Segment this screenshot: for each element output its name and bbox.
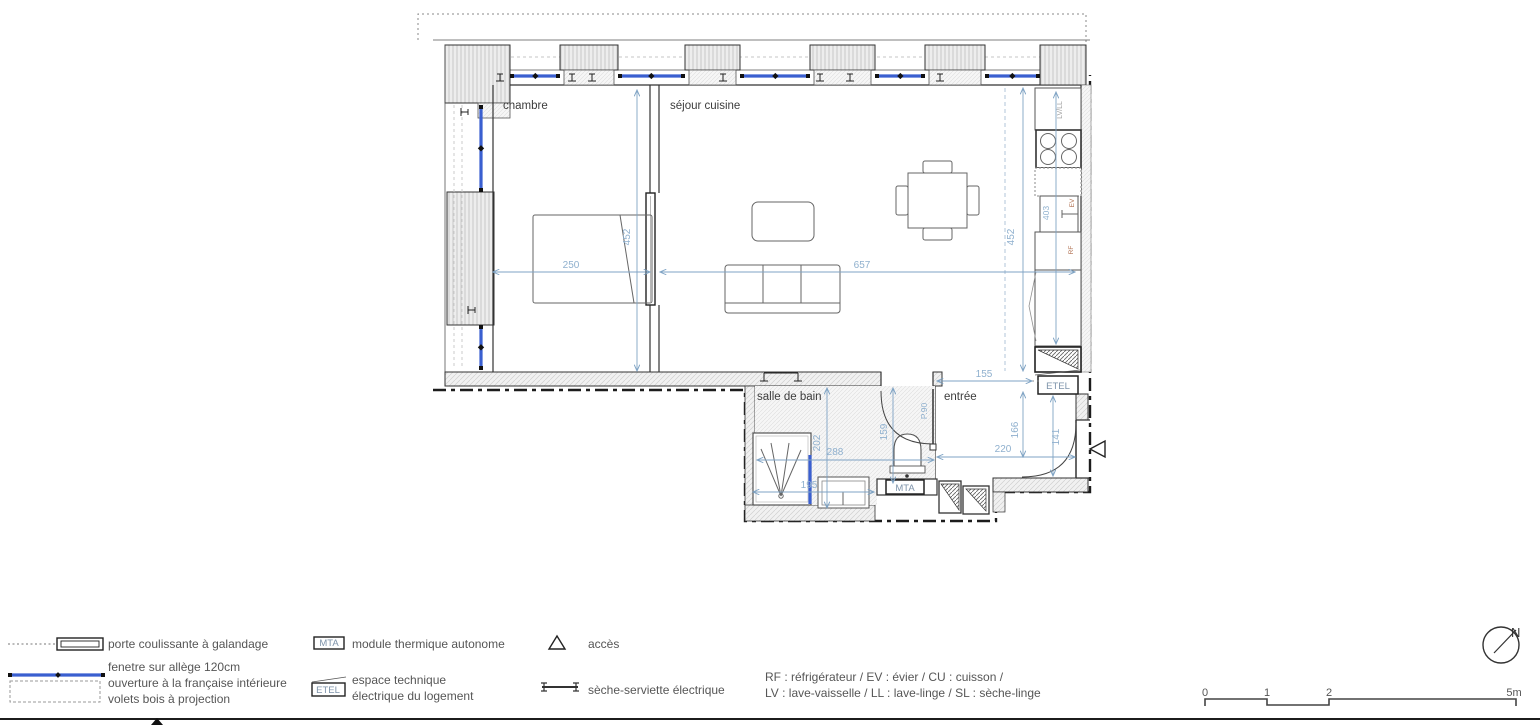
room-label-entree: entrée: [944, 391, 977, 403]
scale-5m: 5m: [1506, 687, 1521, 699]
legend-sliding-door-label: porte coulissante à galandage: [108, 637, 268, 651]
legend-item-mta: MTA module thermique autonome: [314, 637, 505, 651]
dim-452-left: 452: [622, 228, 633, 245]
scale-2: 2: [1326, 687, 1332, 699]
pier: [810, 45, 875, 70]
towel-radiator-icon: [541, 683, 579, 691]
kitchen: [1029, 88, 1081, 394]
ev-tag: EV: [1069, 198, 1076, 207]
room-label-sdb: salle de bain: [757, 391, 822, 403]
legend-window-line3: volets bois à projection: [108, 692, 230, 706]
tall-cabinet: [1035, 270, 1081, 346]
rf-tag: RF: [1068, 246, 1075, 255]
furniture: [533, 161, 979, 313]
windows: [461, 73, 1040, 370]
room-label-chambre: chambre: [503, 100, 548, 112]
legend-abbreviations: RF : réfrigérateur / EV : évier / CU : c…: [765, 670, 1041, 700]
north-label: N: [1511, 625, 1520, 640]
legend-etel-line1: espace technique: [352, 673, 446, 687]
legend-mta-label: module thermique autonome: [352, 637, 505, 651]
pier: [560, 45, 618, 70]
legend: porte coulissante à galandage fenetre su…: [8, 636, 1041, 706]
coffee-table: [752, 202, 814, 241]
scale-bar: 0 1 2 5m: [1202, 687, 1522, 706]
dim-250: 250: [563, 260, 580, 271]
floor-plan-sheet: 250 657 452 452 403 155 166 220 141 288 …: [0, 0, 1540, 728]
dim-166: 166: [1010, 421, 1021, 438]
legend-item-sliding-door: porte coulissante à galandage: [8, 637, 268, 651]
legend-window-line2: ouverture à la française intérieure: [108, 676, 287, 690]
counter: [1035, 168, 1081, 196]
etel-tag: ETEL: [1046, 381, 1070, 392]
dim-220: 220: [995, 444, 1012, 455]
pier: [685, 45, 740, 70]
dim-452-right: 452: [1006, 228, 1017, 245]
scale-0: 0: [1202, 687, 1208, 699]
dim-288: 288: [827, 447, 844, 458]
legend-mta-tag: MTA: [319, 638, 339, 649]
bed: [533, 215, 652, 303]
legend-window-line1: fenetre sur allège 120cm: [108, 660, 240, 674]
floor-plan-drawing: 250 657 452 452 403 155 166 220 141 288 …: [0, 0, 1540, 728]
legend-item-window: fenetre sur allège 120cm ouverture à la …: [8, 660, 287, 706]
legend-seche-label: sèche-serviette électrique: [588, 683, 725, 697]
legend-etel-line2: électrique du logement: [352, 689, 474, 703]
dim-202: 202: [812, 434, 823, 451]
legend-etel-tag: ETEL: [316, 685, 340, 696]
abbrev-line1: RF : réfrigérateur / EV : évier / CU : c…: [765, 670, 1004, 684]
dim-159: 159: [879, 423, 890, 440]
dining-table: [896, 161, 979, 240]
access-triangle-legend-icon: [549, 636, 565, 649]
scale-1: 1: [1264, 687, 1270, 699]
door-size-label: P.90: [919, 403, 929, 420]
lvll-tag: LV/LL: [1057, 101, 1064, 119]
abbrev-line2: LV : lave-vaisselle / LL : lave-linge / …: [765, 686, 1041, 700]
dim-657: 657: [854, 260, 871, 271]
window-fixings: [478, 73, 1040, 370]
north-arrow-icon: N: [1483, 625, 1520, 663]
legend-item-acces: accès: [549, 636, 619, 651]
access-triangle-icon: [1090, 441, 1105, 457]
dim-141: 141: [1051, 428, 1062, 445]
legend-acces-label: accès: [588, 637, 619, 651]
pier: [925, 45, 985, 70]
legend-item-etel: ETEL espace technique électrique du loge…: [312, 673, 474, 703]
room-label-sejour: séjour cuisine: [670, 100, 740, 112]
mta-tag: MTA: [895, 483, 915, 494]
dim-403: 403: [1041, 206, 1051, 220]
pier: [1040, 45, 1086, 85]
legend-item-seche-serviette: sèche-serviette électrique: [541, 683, 725, 697]
sheet-footer: [0, 718, 1540, 725]
dim-195: 195: [801, 480, 818, 491]
entrance-door-arc: [1022, 423, 1076, 477]
dim-155: 155: [976, 369, 993, 380]
